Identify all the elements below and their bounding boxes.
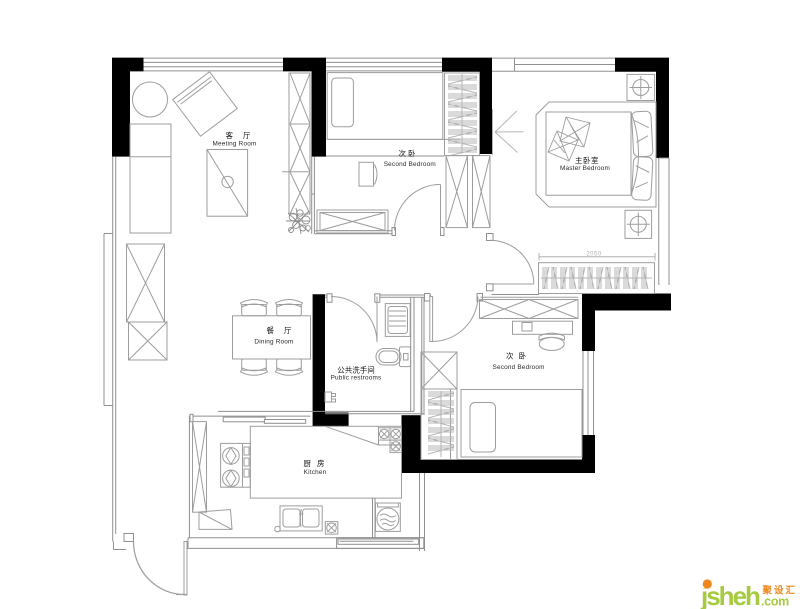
svg-text:Kitchen: Kitchen — [304, 469, 327, 476]
svg-text:2050: 2050 — [586, 252, 602, 258]
svg-text:次 卧: 次 卧 — [506, 351, 528, 361]
svg-text:Dining Room: Dining Room — [254, 338, 293, 345]
svg-text:餐 厅: 餐 厅 — [266, 326, 295, 335]
svg-text:Public restrooms: Public restrooms — [331, 375, 382, 382]
svg-text:主卧室: 主卧室 — [575, 155, 599, 165]
svg-text:厨 房: 厨 房 — [303, 458, 326, 468]
svg-text:Second Bedroom: Second Bedroom — [384, 161, 436, 168]
svg-text:客 厅: 客 厅 — [225, 130, 254, 140]
svg-text:聚设汇: 聚设汇 — [762, 585, 798, 597]
svg-text:Second Bedroom: Second Bedroom — [493, 364, 545, 371]
svg-text:公共洗手间: 公共洗手间 — [337, 365, 375, 375]
svg-text:.com: .com — [761, 595, 789, 609]
svg-text:Master Bedroom: Master Bedroom — [560, 165, 610, 172]
svg-text:次 卧: 次 卧 — [398, 148, 416, 158]
svg-text:Meeting Room: Meeting Room — [213, 141, 257, 148]
